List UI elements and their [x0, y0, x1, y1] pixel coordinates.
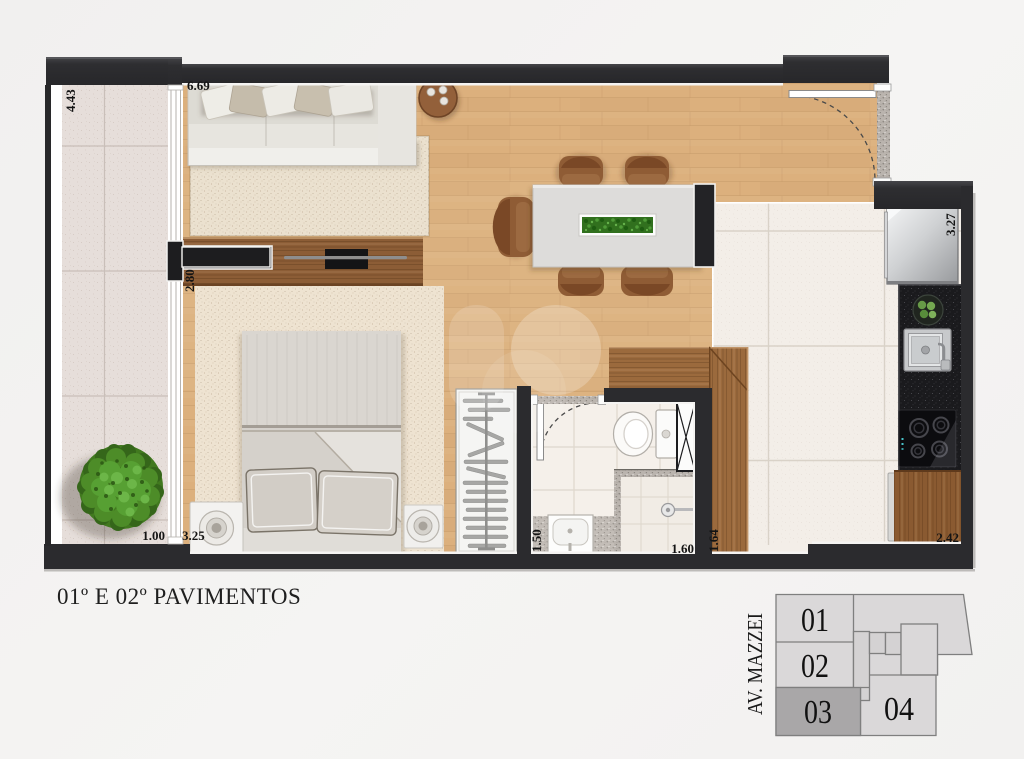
svg-text:2.80: 2.80 — [182, 269, 197, 292]
svg-text:6.69: 6.69 — [187, 78, 210, 93]
svg-text:03: 03 — [804, 694, 832, 731]
svg-text:02: 02 — [801, 648, 829, 685]
svg-text:01: 01 — [801, 602, 829, 639]
svg-text:2.42: 2.42 — [936, 530, 959, 545]
svg-text:01º E 02º PAVIMENTOS: 01º E 02º PAVIMENTOS — [57, 584, 301, 609]
svg-text:AV. MAZZEI: AV. MAZZEI — [743, 613, 767, 715]
svg-text:4.43: 4.43 — [63, 89, 78, 112]
svg-text:04: 04 — [884, 691, 914, 728]
svg-text:1.64: 1.64 — [706, 529, 721, 552]
svg-text:1.50: 1.50 — [529, 529, 544, 552]
svg-text:1.60: 1.60 — [671, 541, 694, 556]
svg-text:1.00: 1.00 — [142, 528, 165, 543]
svg-text:3.27: 3.27 — [943, 213, 958, 236]
svg-text:3.25: 3.25 — [182, 528, 205, 543]
